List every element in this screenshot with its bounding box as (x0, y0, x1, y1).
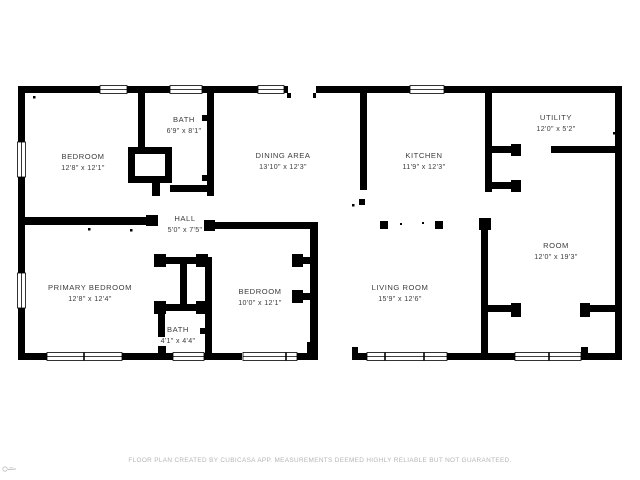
footer-disclaimer: FLOOR PLAN CREATED BY CUBICASA APP. MEAS… (0, 457, 640, 464)
room-dimensions: 13'10" x 12'3" (256, 163, 311, 171)
room-dimensions: 5'0" x 7'5" (168, 226, 203, 234)
room-label-hall: HALL 5'0" x 7'5" (168, 214, 203, 234)
walls (18, 86, 622, 360)
room-label-bath-lower: BATH 4'1" x 4'4" (161, 325, 196, 345)
room-label-dining-area: DINING AREA 13'10" x 12'3" (256, 151, 311, 171)
room-dimensions: 15'9" x 12'6" (372, 295, 429, 303)
room-dimensions: 4'1" x 4'4" (161, 337, 196, 345)
room-name: ROOM (534, 241, 577, 250)
room-name: PRIMARY BEDROOM (48, 283, 132, 292)
room-label-bedroom-left: BEDROOM 12'8" x 12'1" (61, 152, 104, 172)
floor-plan-page: BATH 6'9" x 8'1" BEDROOM 12'8" x 12'1" D… (0, 0, 640, 480)
room-dimensions: 10'0" x 12'1" (238, 299, 281, 307)
room-dimensions: 12'8" x 12'4" (48, 295, 132, 303)
room-dimensions: 12'8" x 12'1" (61, 164, 104, 172)
room-dimensions: 6'9" x 8'1" (167, 127, 202, 135)
room-name: KITCHEN (403, 151, 446, 160)
room-label-primary-bedroom: PRIMARY BEDROOM 12'8" x 12'4" (48, 283, 132, 303)
room-label-room: ROOM 12'0" x 19'3" (534, 241, 577, 261)
room-name: LIVING ROOM (372, 283, 429, 292)
room-name: HALL (168, 214, 203, 223)
room-label-bedroom-center: BEDROOM 10'0" x 12'1" (238, 287, 281, 307)
room-label-living-room: LIVING ROOM 15'9" x 12'6" (372, 283, 429, 303)
room-label-bath-upper: BATH 6'9" x 8'1" (167, 115, 202, 135)
floor-plan-drawing (0, 0, 640, 480)
corner-watermark (2, 464, 18, 473)
room-label-utility: UTILITY 12'0" x 5'2" (536, 113, 575, 133)
room-dimensions: 12'0" x 19'3" (534, 253, 577, 261)
room-dimensions: 12'0" x 5'2" (536, 125, 575, 133)
room-dimensions: 11'9" x 12'3" (403, 163, 446, 171)
room-label-kitchen: KITCHEN 11'9" x 12'3" (403, 151, 446, 171)
room-name: BATH (161, 325, 196, 334)
room-name: DINING AREA (256, 151, 311, 160)
room-name: BEDROOM (61, 152, 104, 161)
room-name: BATH (167, 115, 202, 124)
room-name: UTILITY (536, 113, 575, 122)
door-dots (33, 96, 616, 250)
room-name: BEDROOM (238, 287, 281, 296)
